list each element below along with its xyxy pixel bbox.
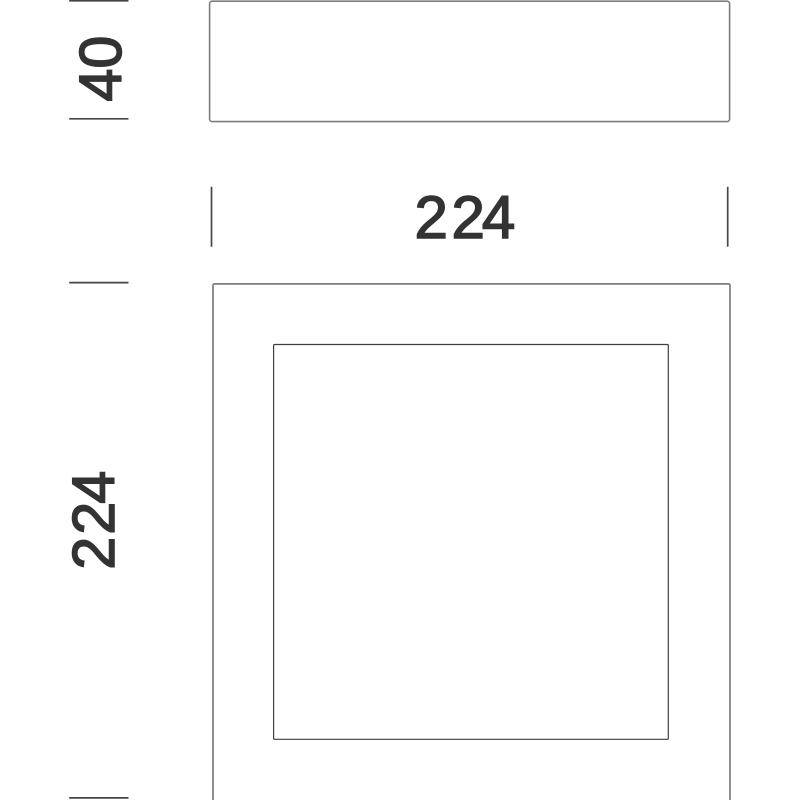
svg-text:40: 40 — [68, 36, 134, 102]
svg-text:224: 224 — [61, 471, 127, 570]
svg-text:224: 224 — [415, 184, 516, 251]
